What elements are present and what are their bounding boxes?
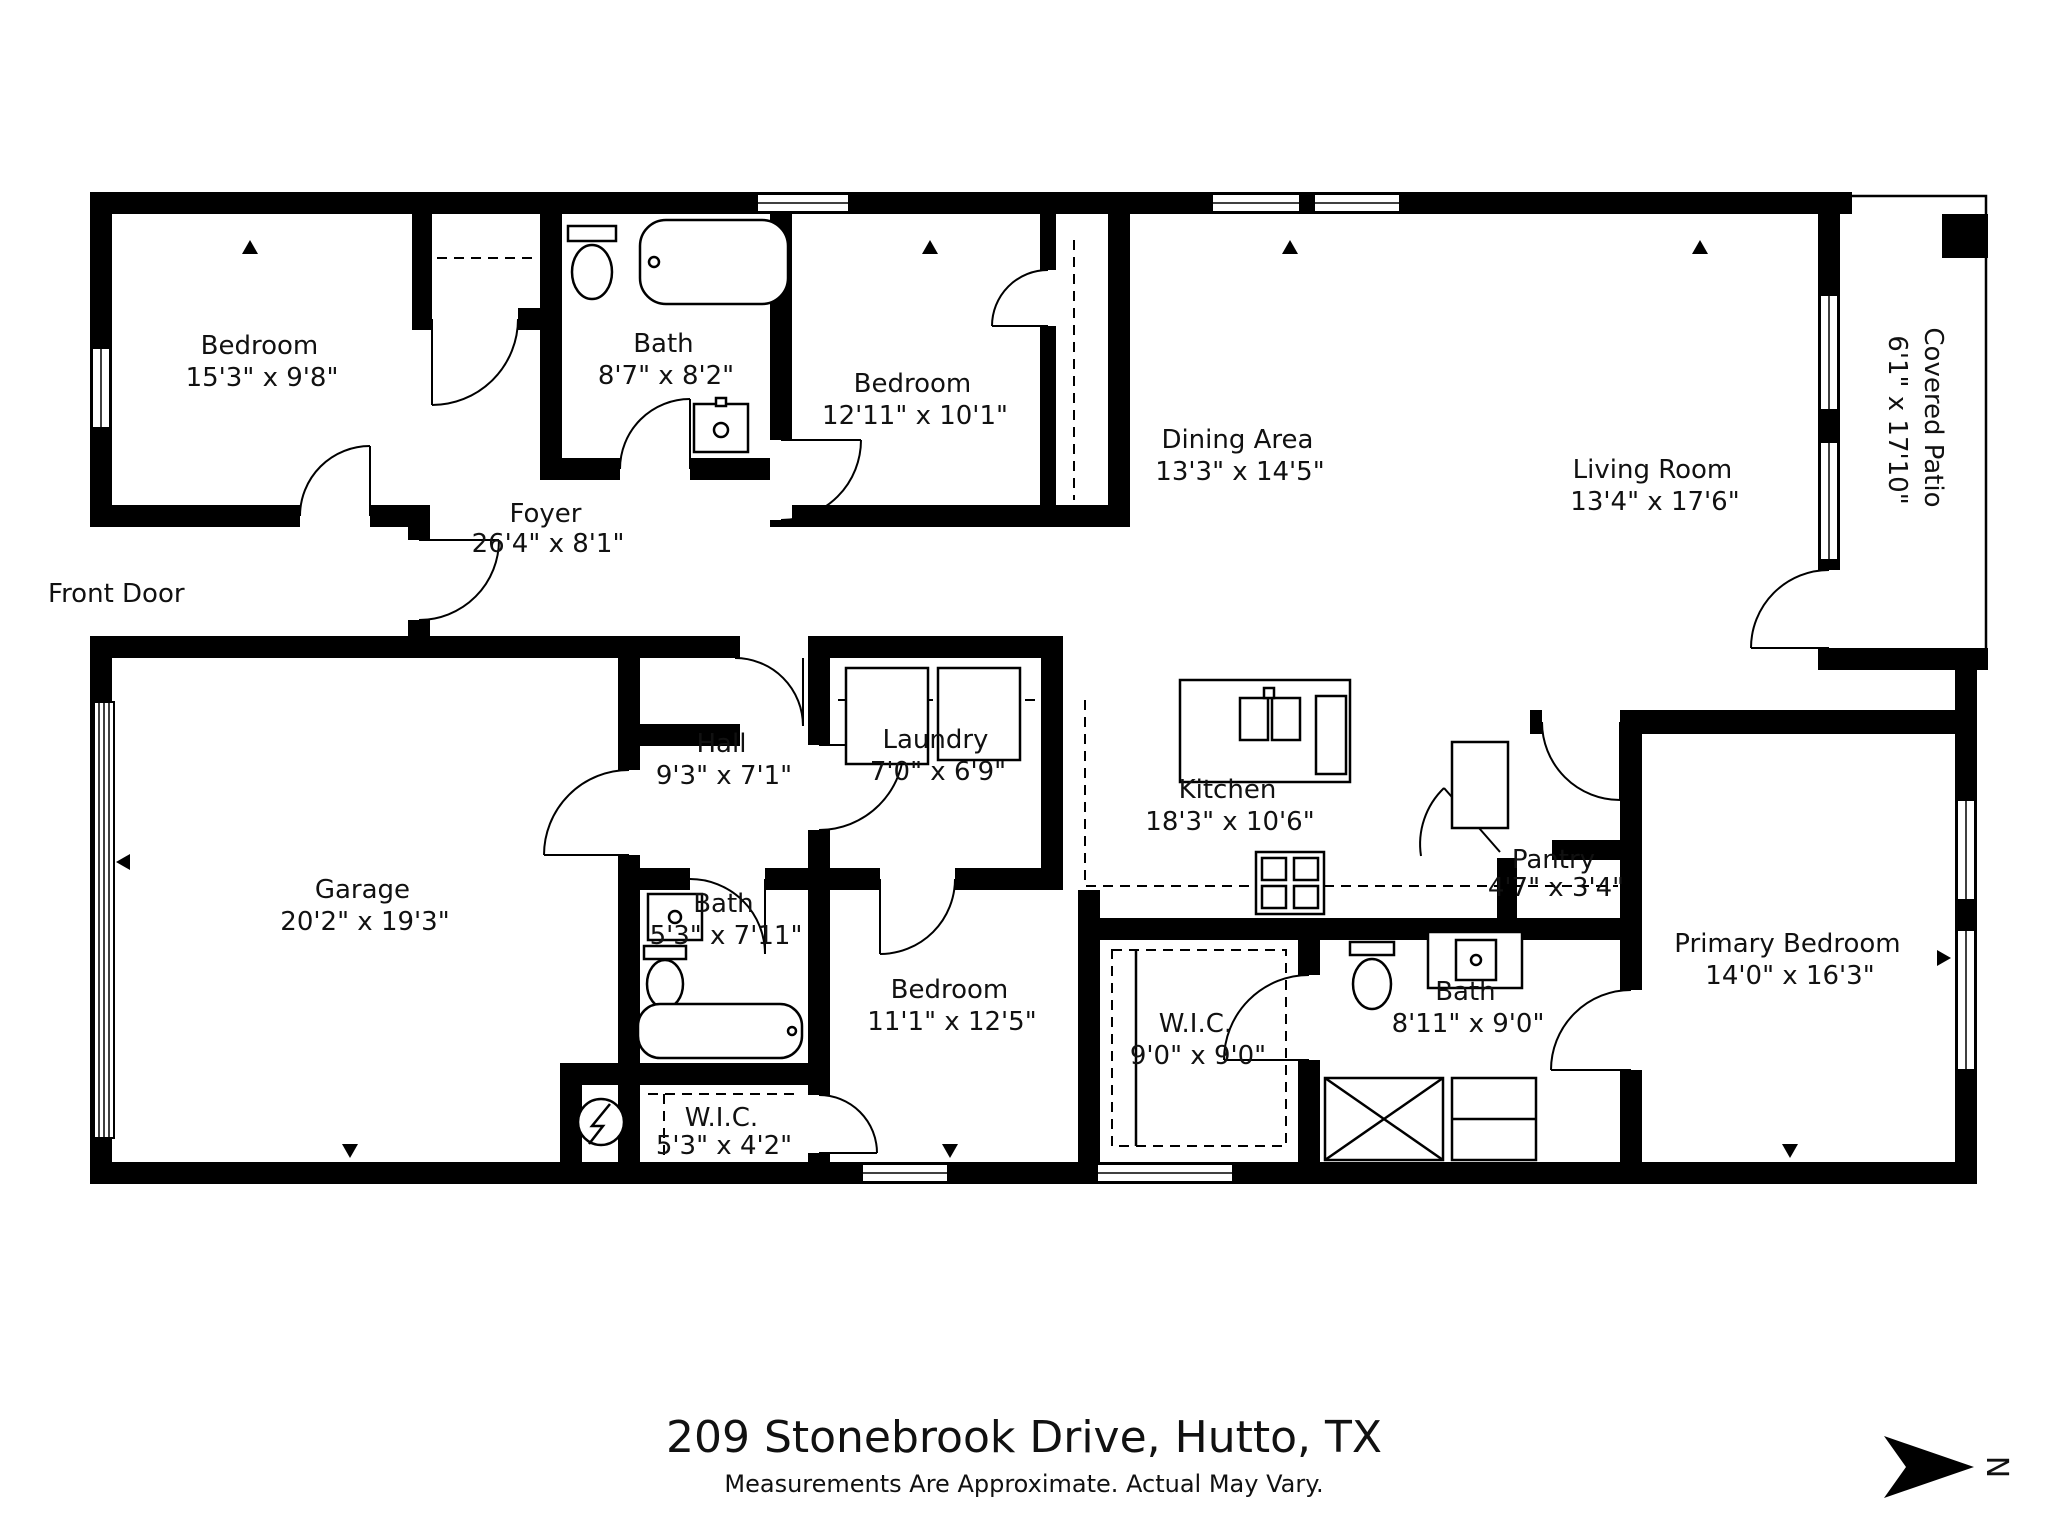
walls [90,192,1988,1184]
room-label-bedroom-2: Bedroom 12'11" x 10'1" [822,369,1008,431]
compass: N [1884,1436,2014,1498]
room-label-primary-bedroom: Primary Bedroom 14'0" x 16'3" [1674,929,1905,991]
door-gap [1298,975,1320,1060]
room-labels: Bedroom 15'3" x 9'8" Bath 8'7" x 8'2" Be… [186,327,1948,1161]
compass-north-icon [1884,1436,1974,1498]
wall [560,1085,582,1184]
window-icon [1820,295,1838,410]
window-icon [92,348,110,428]
bathtub-icon [638,1004,802,1058]
wall [618,658,640,1063]
door-gap [880,868,955,890]
door-openings [300,308,1840,1153]
wall [90,1162,1977,1184]
shower-icon [1325,1078,1443,1160]
door-gap [1818,570,1840,648]
window-icon [1957,800,1975,900]
faucet-icon [1264,688,1274,698]
door-swing-icon [735,658,803,726]
bathtub-icon [640,220,788,304]
door-gap [432,308,518,330]
door-gap [300,505,370,527]
room-label-foyer: Foyer 26'4" x 8'1" [472,499,625,559]
room-label-garage: Garage 20'2" x 19'3" [280,875,449,937]
garage-door-icon [94,702,114,1138]
toilet-icon [1350,942,1394,1009]
window-icon [1097,1164,1233,1182]
door-gap [408,540,430,620]
door-gap [808,745,830,830]
room-label-bath-1: Bath 8'7" x 8'2" [598,329,734,391]
wall [412,214,432,308]
sink-basin [1240,698,1268,740]
window-icon [862,1164,948,1182]
room-label-bedroom-3: Bedroom 11'1" x 12'5" [867,975,1036,1037]
window-icon [1820,442,1838,560]
wall [90,192,1852,214]
disclaimer-text: Measurements Are Approximate. Actual May… [724,1470,1323,1498]
range-icon [1256,852,1324,914]
compass-north-label: N [1979,1456,2014,1478]
kitchen-island [1180,680,1350,782]
room-label-covered-patio: Covered Patio 6'1" x 17'10" [1882,327,1948,512]
wall [618,1063,830,1085]
door-swing-icon [1751,570,1829,648]
door-swing-icon [1551,990,1631,1070]
sink-basin [1272,698,1300,740]
door-swing-icon [880,879,955,954]
wall [90,636,740,658]
room-label-wic-primary: W.I.C. 9'0" x 9'0" [1130,1009,1266,1071]
window-icon [1314,194,1400,212]
front-door-label: Front Door [48,579,185,609]
toilet-icon [568,226,616,299]
water-heater-icon [578,1099,624,1145]
floor-plan-canvas: Bedroom 15'3" x 9'8" Bath 8'7" x 8'2" Be… [0,0,2048,1536]
wall [1955,670,1977,1184]
door-gap [618,770,640,855]
door-swing-icon [992,270,1048,326]
room-label-bedroom-1: Bedroom 15'3" x 9'8" [186,331,339,393]
wall [1818,648,1988,670]
room-label-dining-area: Dining Area 13'3" x 14'5" [1155,425,1324,487]
wall [1041,636,1063,890]
room-label-living-room: Living Room 13'4" x 17'6" [1570,455,1739,517]
wall [90,505,430,527]
door-gap [1542,710,1620,734]
linen-cabinet-icon [1452,1078,1536,1160]
door-swing-icon [544,770,629,855]
wall [1078,918,1642,940]
wall [1040,326,1056,527]
toilet-icon [644,946,686,1008]
door-gap [1620,990,1642,1070]
room-label-kitchen: Kitchen 18'3" x 10'6" [1145,775,1314,837]
wall [830,636,1041,658]
window-icon [1957,930,1975,1070]
wall [1040,214,1056,270]
address-title: 209 Stonebrook Drive, Hutto, TX [666,1412,1382,1463]
floor-plan-page: Bedroom 15'3" x 9'8" Bath 8'7" x 8'2" Be… [0,0,2048,1536]
door-swing-icon [432,319,518,405]
dishwasher-icon [1316,696,1346,774]
wall [540,192,562,480]
wall [618,868,1063,890]
fridge-icon [1452,742,1508,828]
door-gap [808,1095,830,1153]
door-gap [770,440,792,520]
sink-icon [694,398,748,452]
wall [1108,192,1130,527]
door-gap [620,458,690,480]
room-label-wic-2: W.I.C. 5'3" x 4'2" [656,1103,792,1161]
wall [1942,214,1988,258]
window-icon [757,194,849,212]
window-icon [1212,194,1300,212]
